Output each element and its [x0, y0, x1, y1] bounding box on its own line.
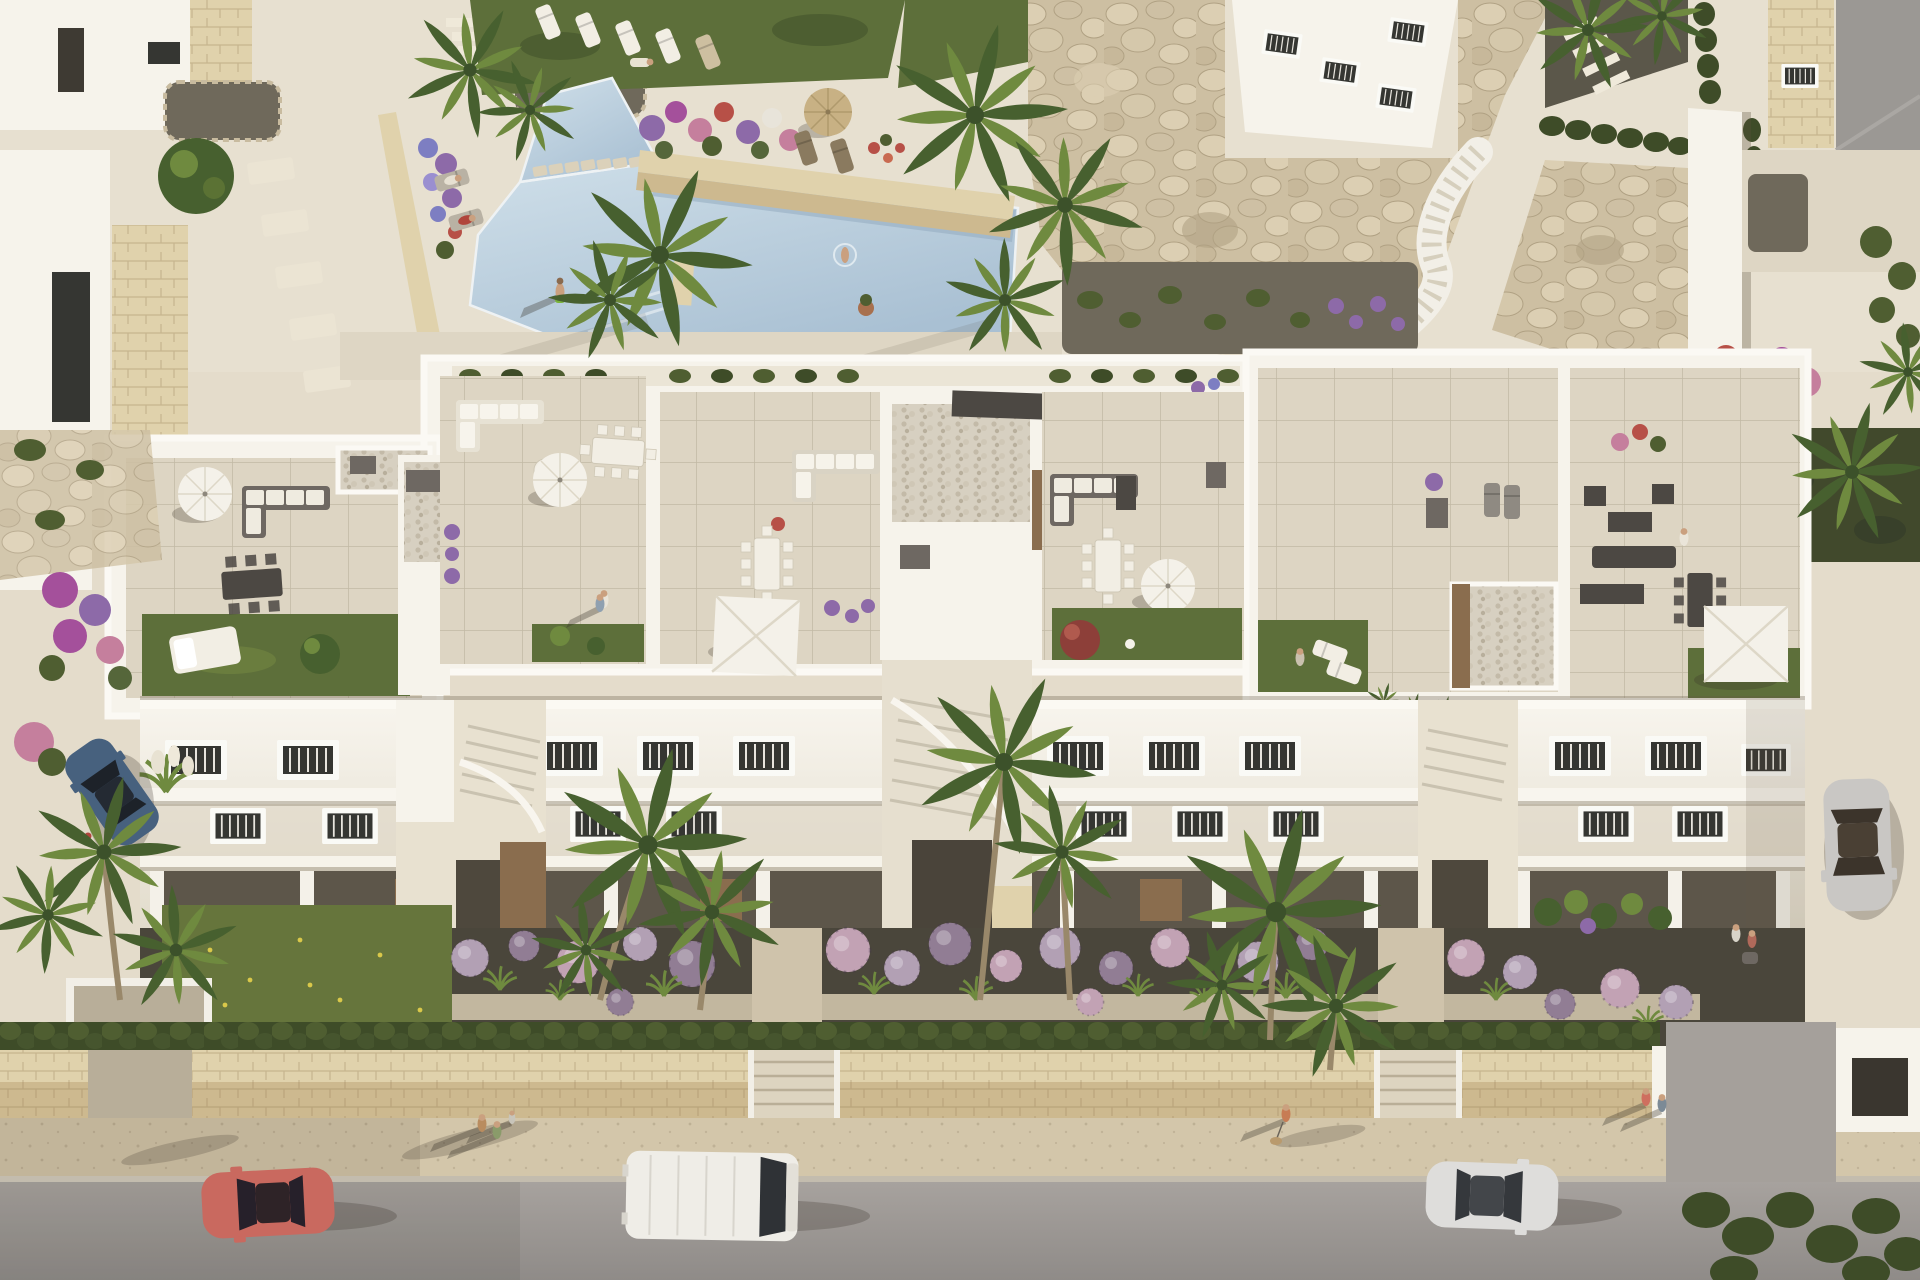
tower-hatch: [406, 470, 440, 492]
shrub: [587, 637, 605, 655]
boundary-wall: [1688, 108, 1742, 352]
terrace-unit-4: [1042, 392, 1244, 660]
facade-end-shade: [1746, 700, 1805, 930]
terrace-unit-1: [126, 448, 430, 698]
tower-window: [1781, 64, 1818, 88]
roof-umbrella: [178, 467, 232, 521]
garden-tree: [158, 138, 234, 214]
square-canopy: [712, 596, 800, 676]
storage-box: [1580, 584, 1644, 604]
planter-flowers: [444, 524, 460, 584]
pot-plant: [860, 294, 872, 306]
villa-door: [58, 28, 84, 92]
roof-umbrella: [1141, 559, 1195, 613]
roof-dining: [220, 553, 284, 615]
gate: [1852, 1058, 1908, 1116]
grey-roof: [1836, 0, 1920, 152]
tree-highlight: [203, 177, 225, 199]
resident: [1680, 528, 1689, 546]
stairwell-left: [396, 700, 546, 930]
villa-tall-window: [52, 272, 90, 422]
tree-highlight: [170, 150, 198, 178]
roof-umbrella: [533, 453, 587, 507]
van-hood: [785, 1163, 798, 1231]
flower-pot: [771, 517, 785, 531]
square-canopy: [1704, 606, 1788, 682]
tree-highlight: [304, 638, 320, 654]
stone-texture: [190, 0, 252, 96]
gravel-bed: [1748, 174, 1808, 252]
stroller: [1742, 952, 1758, 964]
terrace-unit-2: [440, 376, 658, 664]
terrace-unit-6: [1570, 368, 1800, 698]
dark-sofa: [1592, 546, 1676, 568]
red-shrub: [1060, 620, 1100, 660]
villa-window: [148, 42, 180, 64]
lawn-shading: [772, 14, 868, 46]
flower-pot: [1425, 473, 1443, 491]
building-facade: [140, 660, 1805, 930]
scene-canvas: Aerial render of a modern white Mediterr…: [0, 0, 1920, 1280]
storage-cube: [1426, 498, 1448, 528]
bistro-set: [1206, 462, 1226, 488]
grey-lounger: [1484, 483, 1500, 517]
aerial-render: Aerial render of a modern white Mediterr…: [0, 0, 1920, 1280]
terrace-tree: [300, 634, 340, 674]
right-driveway: [1666, 1022, 1836, 1182]
armchair: [1652, 484, 1674, 504]
central-stair-bulkhead: [880, 390, 1044, 660]
gravel-garden: [1062, 262, 1418, 354]
shrub-highlight: [1064, 624, 1080, 640]
dog: [1270, 1137, 1282, 1145]
stairwell-right: [1418, 700, 1518, 930]
terrace-unit-3: [660, 392, 916, 676]
armchair: [1584, 486, 1606, 506]
ramp-cut: [88, 1050, 192, 1118]
street-zone: [0, 1022, 1920, 1280]
resident: [1296, 648, 1305, 666]
barbecue: [1116, 476, 1136, 510]
van-windshield: [759, 1157, 786, 1237]
terrace-unit-5: [1258, 368, 1558, 732]
wood-deck-strip: [1452, 584, 1470, 688]
gravel-bed: [165, 82, 280, 140]
boundary-hedge: [0, 1022, 1660, 1052]
storage-cube: [350, 456, 376, 474]
coffee-table: [1608, 512, 1652, 532]
grey-lounger: [1504, 485, 1520, 519]
garden-shading: [1854, 516, 1906, 544]
shrub: [550, 626, 570, 646]
side-table: [1125, 639, 1135, 649]
